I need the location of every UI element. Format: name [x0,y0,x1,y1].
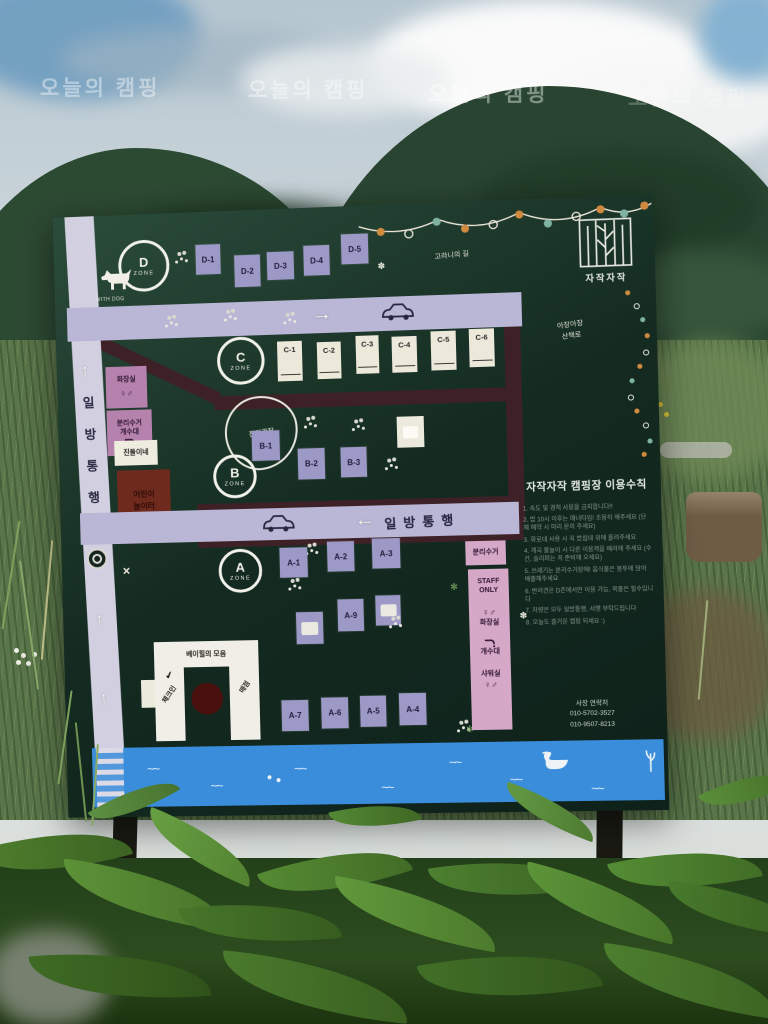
wave-mark: ~~ [381,780,393,795]
trail-dot [640,317,645,322]
deck-line [472,360,492,362]
site-label: C-4 [398,340,410,349]
one-way-char: 일 [82,392,95,411]
site-label: C-5 [437,335,449,344]
right-arrow: → [311,302,333,327]
rule-line: 6. 반려견은 D존에서만 이용 가능, 목줄은 필수입니다 [525,585,654,605]
toilet-left-box: 화장실 ♀♂ [105,366,147,409]
trail-dot [628,394,634,400]
deck-line [320,372,339,374]
gender-icons: ♀♂ [120,387,134,399]
recycle-right-box: 분리수거 [465,540,506,565]
no-entry-mark: ✕ [122,566,130,577]
playground-line1: 어린이 [133,489,155,501]
zone-b-circle: B ZONE [213,454,258,499]
checkin-label: 체크인 [160,684,179,705]
paw-prints [165,324,168,327]
zone-b-word: ZONE [225,481,246,488]
wave-mark: ~~ [449,754,461,769]
gender-icons: ♀♂ [482,606,496,618]
site-label: C-2 [323,346,335,355]
jindol-label: 진돌이네 [123,448,148,458]
trail-dot [643,349,649,355]
sink-left-label: 개수대 [120,428,139,438]
watermark-text: 오늘의 캠핑 [248,74,368,104]
paw-prints [283,321,286,324]
rule-line: 1. 속도 및 경적 사용을 금지합니다!! [523,502,651,514]
building-top-bar: 베이힐의 모음 [154,640,259,668]
building-left-wing: ✔ 체크인 [154,667,185,741]
site-label: C-1 [283,345,295,354]
rules-panel: 자작자작 캠핑장 이용수칙 1. 속도 및 경적 사용을 금지합니다!! 2. … [518,476,661,731]
one-way-char: 행 [88,487,101,506]
dotted-trail [605,287,661,461]
up-arrow: ↑ [80,361,89,381]
river: ~~ ~~ ~~ ~~ ~~ ~~ ~~ [92,739,665,807]
birch-tree-logo-icon [578,217,632,268]
site-box-a: A-3 [372,538,401,569]
staff-line2: ONLY [479,586,498,596]
site-box-c: C-5 [430,331,456,371]
tent-mat [301,621,318,634]
site-box-a-mat [296,612,324,644]
checkin-building: 베이힐의 모음 ✔ 체크인 매점 [154,640,261,741]
wave-mark: ~~ [147,761,158,776]
watermark-text: 오늘의 캠핑 [628,82,748,112]
small-white-structure [141,680,155,708]
site-box-c: C-4 [391,336,417,373]
zone-c-letter: C [236,350,246,363]
photo-of-campground-sign: 오늘의 캠핑 오늘의 캠핑 오늘의 캠핑 오늘의 캠핑 ↑ 일 방 통 행 ↑ [0,0,768,1024]
zone-a-letter: A [235,560,245,573]
staff-facility-column: STAFF ONLY ♀♂ 화장실 개수대 샤워실 ♀♂ [468,568,513,730]
fire-pit-circle [191,683,223,715]
zone-d-letter: D [139,255,149,268]
gender-icons: ♀♂ [484,679,498,691]
trail-dot [634,303,640,309]
site-label: C-6 [475,333,487,342]
deck-line [395,365,415,367]
rule-line: 3. 화로대 사용 시 꼭 받침대 위에 올려주세요 [524,533,652,545]
paw-prints [352,428,355,431]
wave-mark: ~~ [591,781,603,796]
contact-phone: 010-9507-8213 [524,719,661,732]
pale-strip [660,442,732,458]
site-box-b: B-1 [252,430,281,461]
car-icon [262,513,296,536]
building-right-wing: 매점 [229,666,261,740]
paw-prints [304,425,307,428]
faucet-icon [484,638,496,648]
sign-board: ↑ 일 방 통 행 ↑ ↑ → 자작 [53,194,670,818]
trail-dot [625,290,630,295]
check-arrow: ✔ [164,670,175,683]
site-box-c: C-3 [355,335,379,374]
zone-c-circle: C ZONE [217,336,266,385]
walk-path-label: 아장아장 산책로 [557,319,586,344]
site-box-b: B-2 [298,448,326,480]
jindol-box: 진돌이네 [114,440,158,466]
deck-line [434,363,454,365]
recycle-right-label: 분리수거 [473,548,499,558]
zone-c-word: ZONE [230,365,251,372]
building-title: 베이힐의 모음 [186,649,226,660]
duck-doodles [268,775,272,779]
site-label: C-3 [361,339,373,348]
zone-a-word: ZONE [230,575,251,581]
store-label: 매점 [237,679,252,695]
paw-prints [224,318,227,321]
contact-block: 사장 연락처 010-5702-3527 010-9507-8213 [524,697,661,731]
deer-path-label: 고라니의 길 [434,248,469,262]
trail-dot [645,333,650,338]
rule-line: 2. 밤 10시 이후는 매너타임! 조용히 해주세요 (단체 예약 시 미리 … [523,513,652,534]
trail-dot [634,408,639,413]
trail-dot [642,452,647,457]
sink-right-label: 개수대 [480,648,500,658]
tree-stump [686,492,762,562]
rule-line: 7. 차량은 모두 일방통행, 서행 부탁드립니다 [526,605,655,617]
site-box-a: A-6 [321,697,349,728]
site-box-c: C-1 [277,341,303,382]
site-box-d: D-4 [303,245,330,276]
toilet-right-label: 화장실 [480,618,500,628]
site-box-a: A-7 [281,700,309,731]
rules-title: 자작자작 캠핑장 이용수칙 [518,476,655,495]
tent-mat [380,604,396,616]
toilet-left-label: 화장실 [117,375,136,385]
site-box-d: D-3 [267,251,294,280]
trail-dot [637,364,642,369]
dog-icon [99,266,135,295]
white-flowers [14,648,19,653]
paw-prints [385,467,388,470]
site-box-d: D-2 [234,254,261,287]
site-box-a-mat [375,595,401,626]
building-window [403,426,418,438]
watermark-text: 오늘의 캠핑 [40,72,160,102]
left-arrow: ← [354,508,376,533]
wave-mark: ~~ [294,761,305,776]
site-box-a: A-5 [360,696,387,727]
trail-dot [643,422,649,428]
rule-line: 8. 오늘도 즐거운 캠핑 되세요 :) [526,616,655,627]
one-way-char: 통 [86,455,99,474]
plant-doodle: ✻ [450,582,458,593]
paw-prints [175,261,178,264]
zone-a-circle: A ZONE [218,548,263,593]
rule-line: 4. 계곡 물놀이 시 다른 이용객을 배려해 주세요 (수건, 슬리퍼는 꼭 … [524,545,653,566]
trail-dot [647,438,652,443]
paw-prints [288,588,291,591]
wave-mark: ~~ [210,778,221,793]
one-way-mid-label: 일방통행 [384,509,461,533]
site-box-a: A-9 [337,599,364,632]
one-way-char: 방 [84,424,97,443]
rule-line: 5. 쓰레기는 분리수거장에! 음식물은 봉투에 담아 배출해주세요 [524,565,653,586]
site-box-d: D-5 [341,233,369,264]
trail-dot [629,378,634,383]
site-box-a: A-1 [279,547,308,578]
zone-d-word: ZONE [134,270,155,277]
paw-prints [389,625,392,628]
flower-doodle: ✽ [377,261,385,272]
up-arrow: ↑ [99,689,108,709]
swan-icon [537,749,572,776]
site-box-c: C-6 [469,328,495,367]
zone-b-letter: B [230,466,240,479]
site-box-d: D-1 [195,244,220,275]
logo-title: 자작자작 [579,270,634,285]
paw-prints [457,729,460,732]
deck-line [359,366,377,368]
site-box-a: A-4 [399,693,427,726]
site-box-a: A-2 [327,541,355,572]
up-arrow: ↑ [95,610,104,630]
with-dog-label: WITH DOG [96,296,125,303]
small-building [397,416,425,448]
shower-label: 샤워실 [481,669,501,679]
car-icon [381,301,416,324]
deck-line [280,374,300,376]
site-box-b: B-3 [340,447,367,478]
watermark-text: 오늘의 캠핑 [428,78,548,108]
staff-line1: STAFF [477,577,499,587]
water-plant-icon [643,747,658,772]
site-box-c: C-2 [317,341,342,379]
